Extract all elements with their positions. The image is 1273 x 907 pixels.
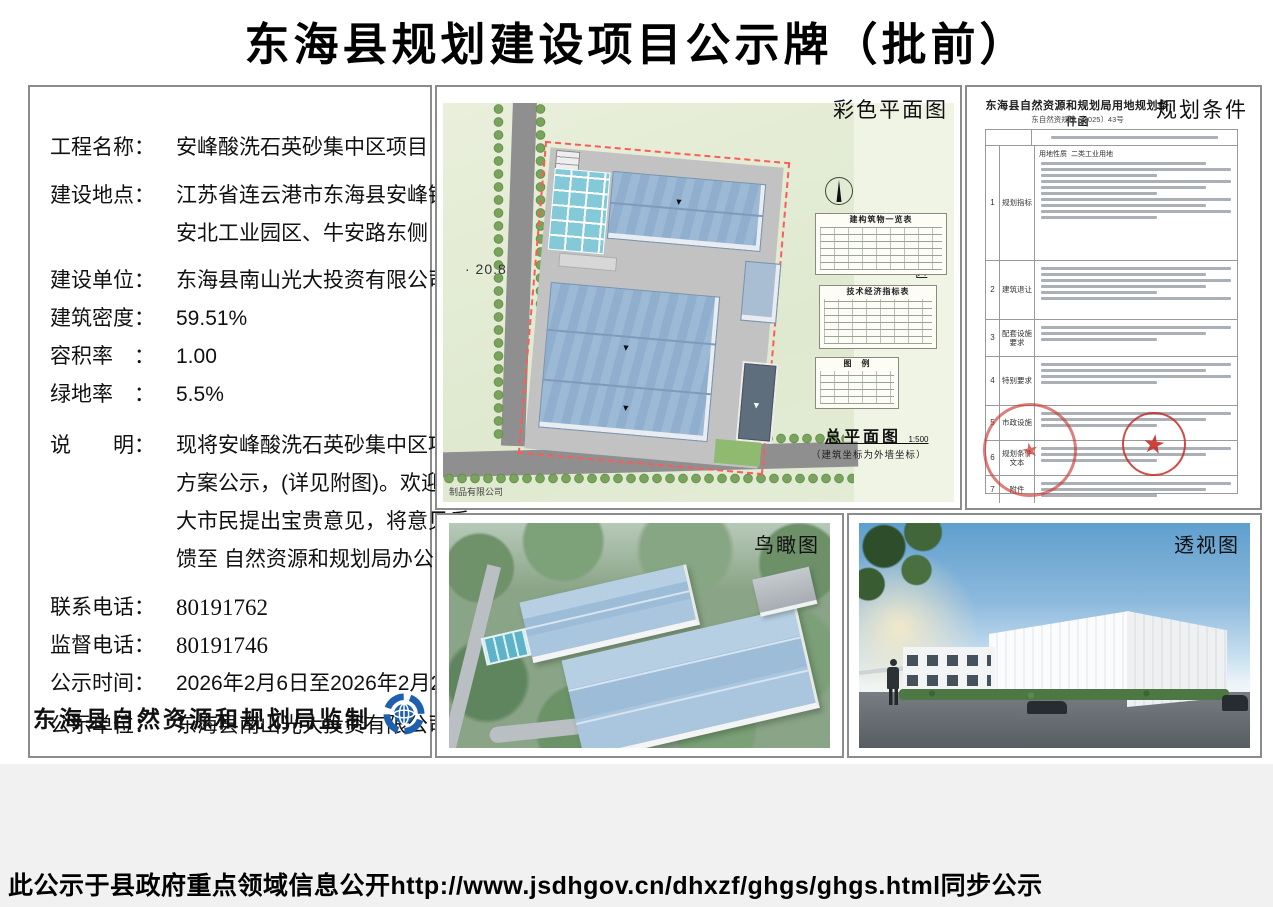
header-cell	[986, 130, 1032, 145]
field-supervise-phone: 监督电话： 80191746	[50, 633, 422, 659]
header-cell	[1032, 130, 1237, 145]
row-num: 4	[986, 357, 1000, 405]
pedestrian-head	[890, 659, 897, 666]
seal-star: ★	[1019, 436, 1042, 464]
aerial-panel-label: 鸟瞰图	[754, 529, 820, 558]
footer-sync-notice: 此公示于县政府重点领域信息公开http://www.jsdhgov.cn/dhx…	[8, 866, 1043, 902]
site-block: ▼ ▼ ▼ ▼	[522, 145, 786, 471]
legend-grid	[820, 371, 894, 404]
structures-table-title: 建构筑物一览表	[816, 214, 946, 226]
hedge-strip	[899, 689, 1229, 700]
conditions-row-1: 1 规划指标 用地性质二类工业用地	[986, 145, 1237, 260]
perspective-rendering: 透视图	[859, 523, 1250, 748]
aerial-annex-building	[752, 567, 817, 617]
building-north	[607, 171, 766, 252]
field-location-line2: 安北工业园区、牛安路东侧	[50, 221, 422, 247]
notice-board-page: 东海县规划建设项目公示牌（批前） 工程名称： 安峰酸洗石英砂集中区项目 建设地点…	[0, 0, 1273, 907]
aerial-rendering: 鸟瞰图	[449, 523, 830, 748]
elevation-label: · 20.8	[465, 261, 507, 277]
field-value: 80191762	[176, 595, 268, 621]
field-value: 5.5%	[176, 382, 224, 408]
land-use-value: 二类工业用地	[1071, 149, 1113, 159]
office-windows-lower	[907, 675, 991, 686]
master-plan-title: 总平面图 1:500	[825, 423, 929, 447]
pedestrian-legs	[889, 689, 898, 705]
field-far: 容积率 ： 1.00	[50, 344, 422, 370]
field-contact-phone: 联系电话： 80191762	[50, 595, 422, 621]
row-label: 配套设施要求	[1000, 320, 1035, 356]
field-label: 监督电话：	[50, 633, 176, 659]
row-label: 规划指标	[1000, 146, 1035, 260]
conditions-doc-number: 东自然资规设〔2025〕43号	[981, 114, 1174, 125]
neighbor-company-label: 制品有限公司	[449, 485, 503, 498]
page-title: 东海县规划建设项目公示牌（批前）	[0, 8, 1273, 73]
conditions-document: 东海县自然资源和规划局用地规划条件函 东自然资规设〔2025〕43号 1 规划指…	[981, 91, 1244, 500]
table-grid	[820, 227, 942, 270]
row-num: 2	[986, 261, 1000, 319]
car	[1222, 695, 1248, 711]
site-plan-panel-label: 彩色平面图	[833, 94, 948, 124]
conditions-row-3: 3 配套设施要求	[986, 319, 1237, 356]
roof-ridge	[611, 202, 763, 217]
pedestrian	[885, 659, 901, 705]
structures-table: 建构筑物一览表	[815, 213, 947, 275]
row-num: 3	[986, 320, 1000, 356]
row-content: 用地性质二类工业用地	[1035, 146, 1237, 260]
aerial-roof-ridge	[576, 670, 808, 725]
note-line-4-row: 馈至 自然资源和规划局办公室。	[50, 547, 422, 573]
conditions-panel-label: 规划条件	[1156, 94, 1248, 124]
field-location: 建设地点： 江苏省连云港市东海县安峰镇	[50, 183, 422, 209]
field-value: 东海县南山光大投资有限公司	[176, 268, 449, 294]
note-line-2: 方案公示，(详见附图)。欢迎广	[176, 471, 463, 497]
row-label: 特别要求	[1000, 357, 1035, 405]
foreground-tree	[859, 523, 975, 629]
aerial-view-panel: 鸟瞰图	[435, 513, 844, 758]
row-content	[1035, 261, 1237, 319]
note-line-1: 现将安峰酸洗石英砂集中区项目	[176, 433, 470, 459]
field-value: 80191746	[176, 633, 268, 659]
project-info-panel: 工程名称： 安峰酸洗石英砂集中区项目 建设地点： 江苏省连云港市东海县安峰镇 安…	[28, 85, 432, 758]
water-tanks	[548, 168, 611, 255]
producer-label: 东海县自然资源和规划局监制	[33, 700, 371, 734]
note-line-2-row: 方案公示，(详见附图)。欢迎广	[50, 471, 422, 497]
legend-title: 图 例	[816, 358, 898, 370]
site-plan-drawing: ▼ ▼ ▼ ▼ · 20.8 施工区 制品有限公司 建构筑物一览表 技术经济指标…	[443, 103, 954, 502]
producer-row: 东海县自然资源和规划局监制	[30, 693, 430, 740]
roof-marker: ▼	[674, 196, 684, 207]
table-grid	[824, 299, 932, 344]
field-note: 说 明： 现将安峰酸洗石英砂集中区项目	[50, 433, 422, 459]
conditions-row-4: 4 特别要求	[986, 356, 1237, 405]
field-label: 建设单位：	[50, 268, 176, 294]
tree-line-bottom	[443, 473, 854, 484]
field-value: 安峰酸洗石英砂集中区项目	[176, 135, 428, 161]
building-south	[538, 282, 720, 442]
field-label: 容积率 ：	[50, 344, 176, 370]
planning-conditions-panel: 规划条件 东海县自然资源和规划局用地规划条件函 东自然资规设〔2025〕43号 …	[965, 85, 1262, 510]
master-plan-note: （建筑坐标为外墙坐标）	[811, 447, 927, 461]
note-line-3: 大市民提出宝贵意见，将意见反	[176, 509, 470, 535]
field-value: 59.51%	[176, 306, 247, 332]
field-builder: 建设单位： 东海县南山光大投资有限公司	[50, 268, 422, 294]
conditions-row-2: 2 建筑退让	[986, 260, 1237, 319]
field-label: 联系电话：	[50, 595, 176, 621]
row-label: 建筑退让	[1000, 261, 1035, 319]
field-label: 绿地率 ：	[50, 382, 176, 408]
field-value: 江苏省连云港市东海县安峰镇	[176, 183, 449, 209]
compass-needle	[837, 180, 842, 202]
building-east-small	[740, 261, 781, 324]
land-use-label: 用地性质	[1039, 149, 1067, 159]
green-patch	[714, 439, 762, 467]
field-project-name: 工程名称： 安峰酸洗石英砂集中区项目	[50, 135, 422, 161]
office-block	[903, 647, 995, 693]
field-label: 工程名称：	[50, 135, 176, 161]
perspective-view-panel: 透视图	[847, 513, 1262, 758]
pedestrian-body	[887, 667, 899, 689]
note-line-3-row: 大市民提出宝贵意见，将意见反	[50, 509, 422, 535]
car	[1027, 701, 1067, 714]
conditions-header-row	[986, 130, 1237, 145]
roof-ridge	[543, 379, 711, 396]
indicators-table-title: 技术经济指标表	[820, 286, 936, 298]
master-plan-scale: 1:500	[908, 435, 928, 444]
master-plan-title-text: 总平面图	[825, 429, 901, 446]
row-num: 1	[986, 146, 1000, 260]
seal-star: ★	[1140, 427, 1167, 461]
field-value: 安北工业园区、牛安路东侧	[176, 221, 428, 247]
field-density: 建筑密度： 59.51%	[50, 306, 422, 332]
field-label: 建设地点：	[50, 183, 176, 209]
roof-marker: ▼	[621, 403, 631, 414]
indicators-table: 技术经济指标表	[819, 285, 937, 349]
field-label: 建筑密度：	[50, 306, 176, 332]
perspective-panel-label: 透视图	[1174, 529, 1240, 558]
roof-marker: ▼	[751, 400, 761, 411]
aerial-roof-ridge	[525, 590, 689, 630]
office-windows-upper	[907, 655, 991, 666]
legend-box: 图 例	[815, 357, 899, 409]
field-green-rate: 绿地率 ： 5.5%	[50, 382, 422, 408]
field-value: 1.00	[176, 344, 217, 370]
natural-resources-bureau-logo-icon	[381, 693, 427, 740]
row-content	[1035, 357, 1237, 405]
roof-ridge	[548, 329, 716, 346]
row-content	[1035, 320, 1237, 356]
note-line-4: 馈至 自然资源和规划局办公室。	[176, 547, 476, 573]
roof-marker: ▼	[621, 342, 631, 353]
north-compass-icon	[825, 177, 853, 205]
site-plan-panel: 彩色平面图	[435, 85, 962, 510]
field-label: 说 明：	[50, 433, 176, 459]
